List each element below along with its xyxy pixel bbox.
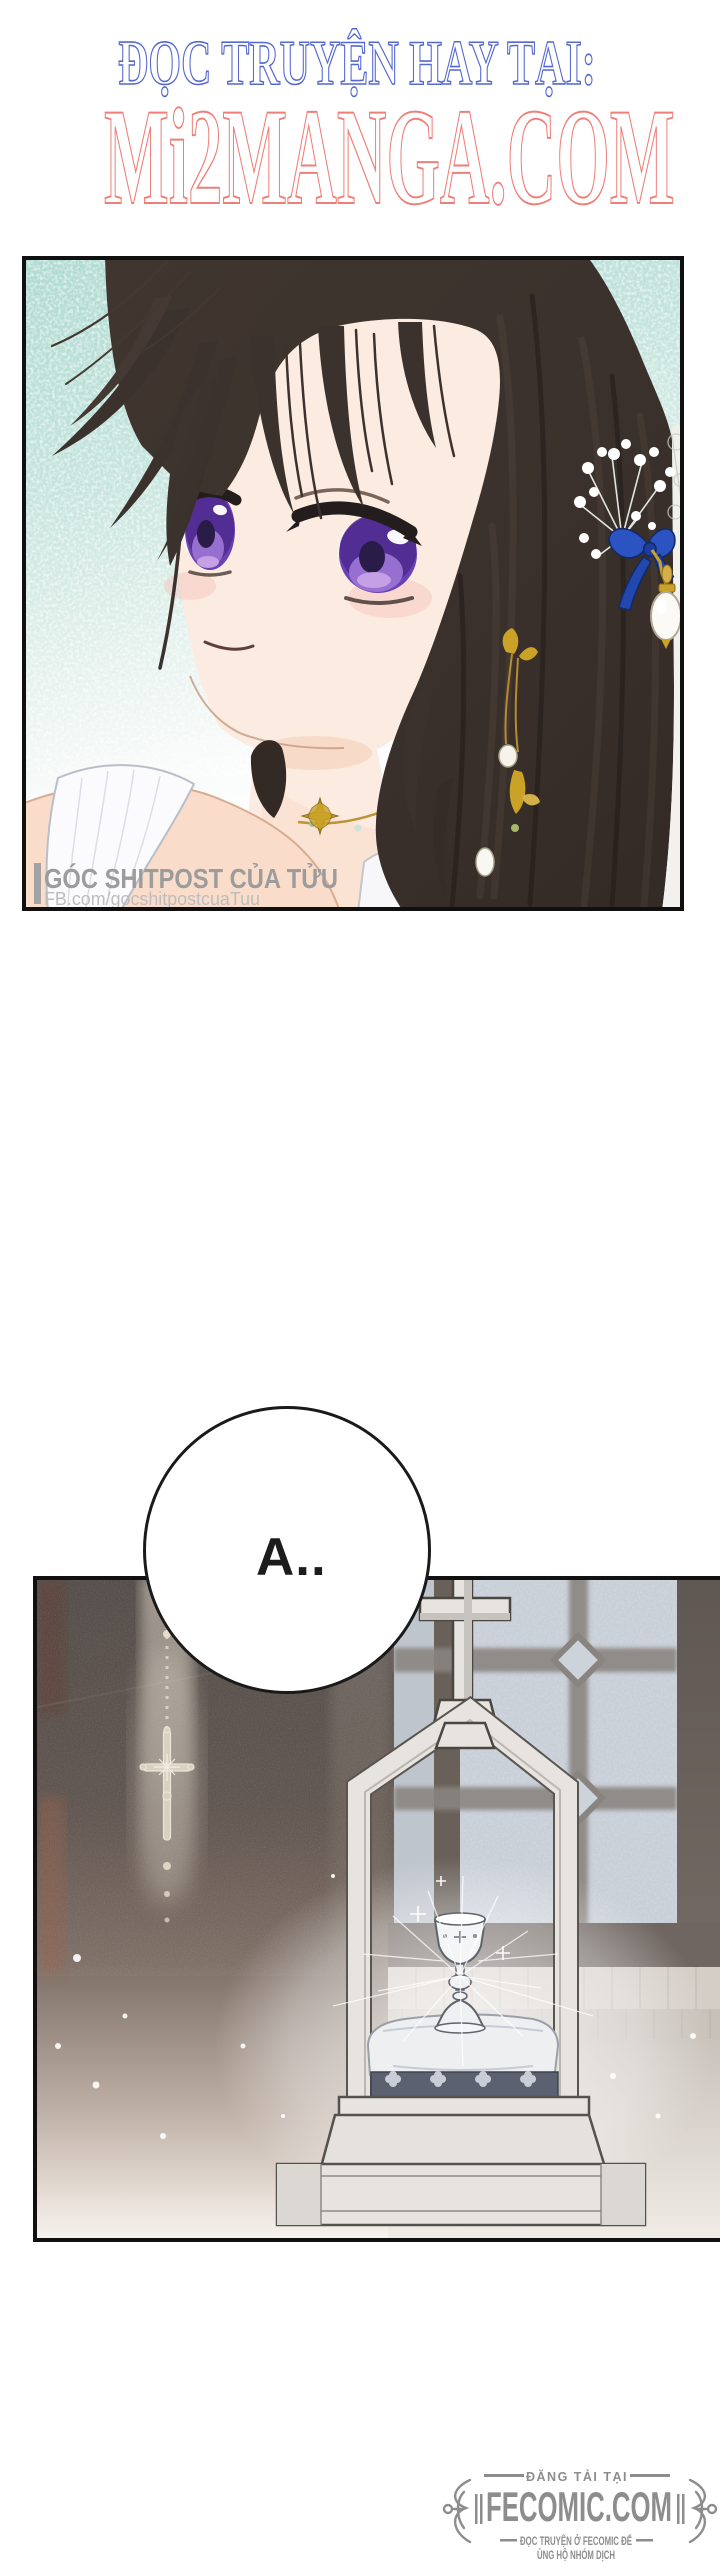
svg-text:FECOMIC.COM: FECOMIC.COM xyxy=(486,2483,672,2530)
svg-text:FB.com/gocshitpostcuaTuu: FB.com/gocshitpostcuaTuu xyxy=(44,889,260,909)
svg-text:ĐỌC TRUYỆN Ở FECOMIC ĐỂ: ĐỌC TRUYỆN Ở FECOMIC ĐỂ xyxy=(520,2533,632,2548)
svg-text:ỦNG HỘ NHÓM DỊCH: ỦNG HỘ NHÓM DỊCH xyxy=(537,2547,615,2562)
svg-text:ĐĂNG TẢI TẠI: ĐĂNG TẢI TẠI xyxy=(526,2469,628,2484)
